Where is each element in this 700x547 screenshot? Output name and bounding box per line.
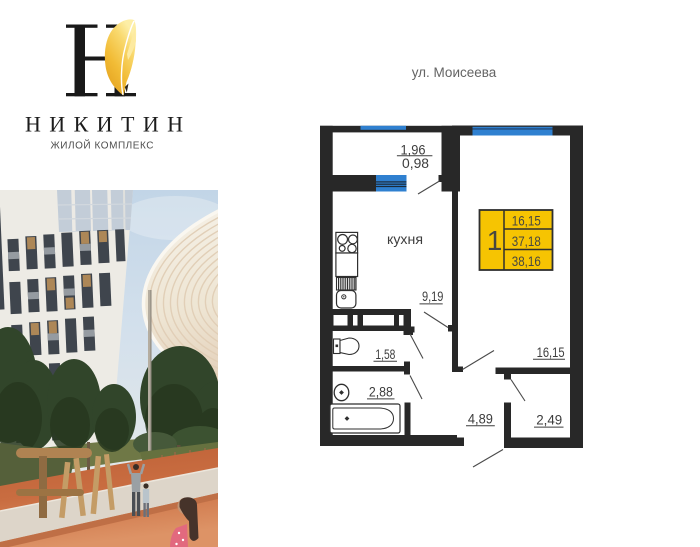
svg-text:16,15: 16,15 [537, 344, 565, 360]
svg-text:4,89: 4,89 [468, 410, 493, 426]
svg-text:38,16: 38,16 [512, 254, 541, 269]
svg-text:0,98: 0,98 [402, 155, 429, 171]
svg-text:37,18: 37,18 [512, 234, 541, 249]
svg-text:кухня: кухня [387, 231, 423, 247]
svg-text:16,15: 16,15 [512, 214, 541, 229]
svg-text:9,19: 9,19 [422, 288, 444, 304]
svg-text:ул. Моисеева: ул. Моисеева [412, 65, 497, 80]
svg-text:2,49: 2,49 [536, 412, 562, 428]
svg-text:2,88: 2,88 [369, 384, 393, 400]
svg-text:1,58: 1,58 [375, 346, 395, 362]
svg-text:1: 1 [487, 225, 503, 256]
